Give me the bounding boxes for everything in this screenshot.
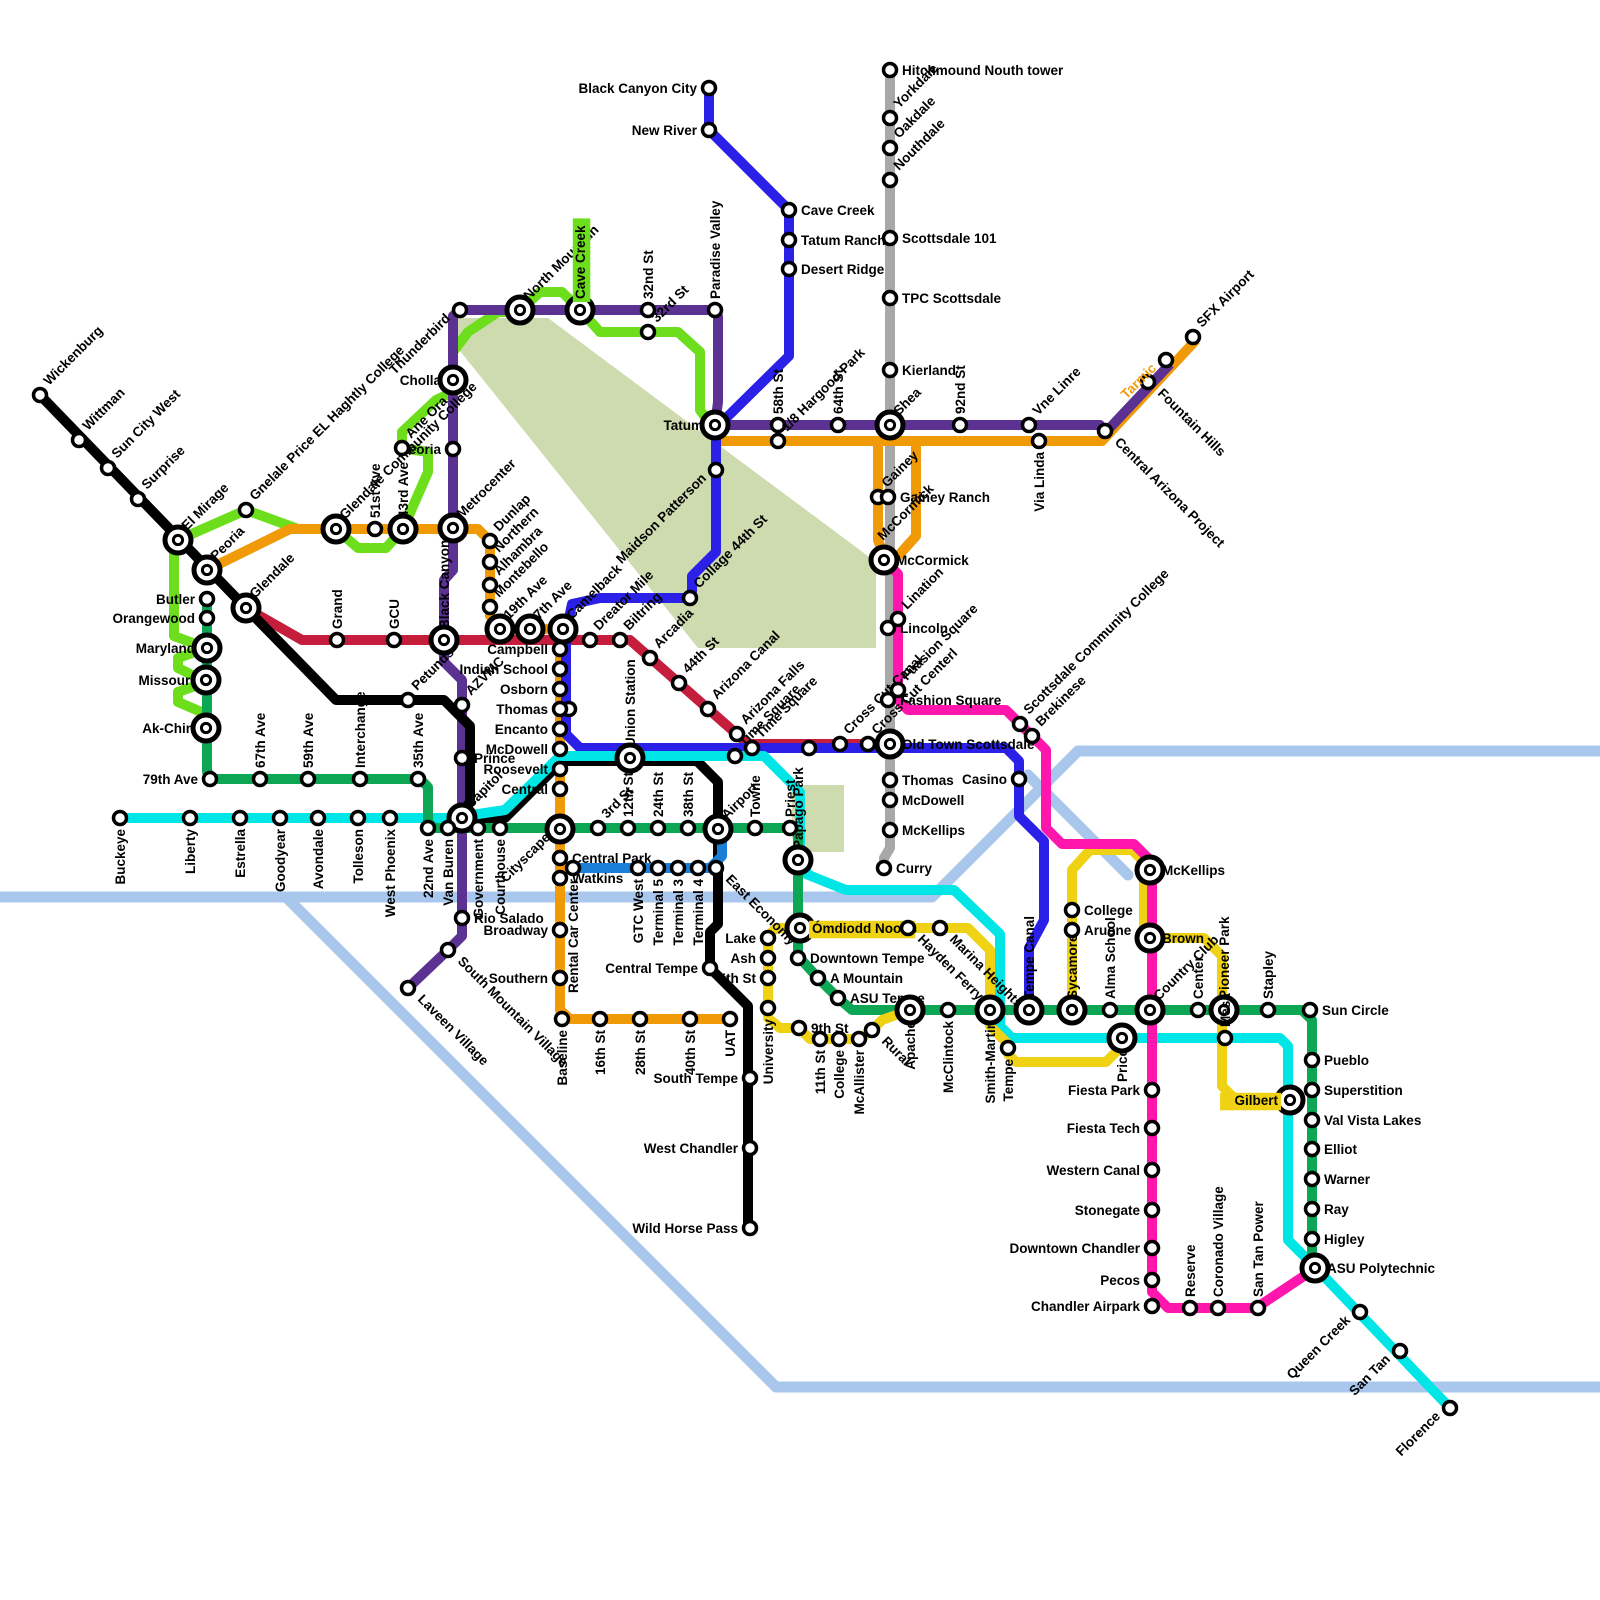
station-label: Curry (896, 861, 933, 876)
station-marker-icon[interactable] (1212, 1302, 1225, 1315)
station-stonegate[interactable]: Stonegate (1075, 1203, 1159, 1218)
station-marker-icon[interactable] (456, 699, 469, 712)
station-marker-icon[interactable] (1066, 924, 1079, 937)
station-center[interactable]: Center (1191, 955, 1206, 1016)
station-terminal-3[interactable]: Terminal 3 (671, 862, 686, 946)
station-marker-icon[interactable] (1146, 1300, 1159, 1313)
station-marker-icon[interactable] (652, 822, 665, 835)
station-new-river[interactable]: New River (632, 123, 716, 138)
station-marker-icon[interactable] (746, 742, 759, 755)
station-encanto[interactable]: Encanto (495, 722, 567, 737)
station-campbell[interactable]: Campbell (487, 642, 566, 657)
station-marker-icon[interactable] (702, 703, 715, 716)
station-label: Black Canyon (437, 540, 452, 629)
station-lake[interactable]: Lake (725, 931, 774, 946)
station-surprise[interactable]: Surprise (132, 442, 189, 505)
station-marker-icon[interactable] (352, 812, 365, 825)
station-stapley[interactable]: Stapley (1261, 950, 1276, 1016)
station-marker-icon[interactable] (1219, 1032, 1232, 1045)
station-desert-ridge[interactable]: Desert Ridge (783, 262, 885, 277)
station-marker-icon[interactable] (442, 822, 455, 835)
station-fashion-square[interactable]: Fashion Square (882, 693, 1002, 708)
station-marker-icon[interactable] (447, 443, 460, 456)
station-marker-icon[interactable] (853, 1033, 866, 1046)
station-sycamore[interactable]: Sycamore (1059, 934, 1085, 1023)
station-broadway[interactable]: Broadway (483, 923, 566, 938)
station-marker-icon[interactable] (384, 812, 397, 825)
station-28th-st[interactable]: 28th St (633, 1013, 648, 1076)
station-marker-icon[interactable] (234, 812, 247, 825)
station-marker-icon[interactable] (710, 862, 723, 875)
station-marker-icon[interactable] (884, 112, 897, 125)
station-label: Shea (891, 384, 925, 418)
station-marker-icon[interactable] (1306, 1054, 1319, 1067)
station-label: 67th Ave (253, 712, 268, 768)
station-thomas[interactable]: Thomas (884, 773, 954, 788)
station-marker-icon[interactable] (709, 304, 722, 317)
interchange-inner-ring-icon (201, 723, 210, 732)
station-marker-icon[interactable] (1002, 1042, 1015, 1055)
station-mdiodd-noobs[interactable]: Ómdiodd Noobs (787, 915, 917, 941)
station-label: Wild Horse Pass (632, 1221, 738, 1236)
station-marker-icon[interactable] (731, 728, 744, 741)
station-mckellips[interactable]: McKellips (884, 823, 966, 838)
station-marker-icon[interactable] (884, 824, 897, 837)
station-marker-icon[interactable] (832, 992, 845, 1005)
station-fiesta-tech[interactable]: Fiesta Tech (1067, 1121, 1159, 1136)
station-label: Government (471, 839, 486, 919)
station-college[interactable]: College (1066, 903, 1134, 918)
interchange-inner-ring-icon (1310, 1263, 1319, 1272)
station-label: Kierland (902, 363, 956, 378)
station-marker-icon[interactable] (1306, 1084, 1319, 1097)
station-station[interactable] (803, 742, 816, 755)
station-thomas[interactable]: Thomas (496, 702, 566, 717)
station-downtown-chandler[interactable]: Downtown Chandler (1010, 1241, 1159, 1256)
station-marker-icon[interactable] (684, 1013, 697, 1026)
station-marker-icon[interactable] (554, 703, 567, 716)
station-marker-icon[interactable] (1262, 1004, 1275, 1017)
station-marker-icon[interactable] (1104, 1004, 1117, 1017)
station-marker-icon[interactable] (1306, 1114, 1319, 1127)
station-marker-icon[interactable] (554, 783, 567, 796)
station-marker-icon[interactable] (762, 952, 775, 965)
station-butler[interactable]: Butler (156, 592, 214, 607)
station-tempe[interactable]: Tempe (1001, 1042, 1016, 1102)
station-ray[interactable]: Ray (1306, 1202, 1350, 1217)
station-scottsdale-101[interactable]: Scottsdale 101 (884, 231, 998, 246)
station-24th-st[interactable]: 24th St (651, 771, 666, 834)
station-marker-icon[interactable] (692, 862, 705, 875)
station-marker-icon[interactable] (456, 752, 469, 765)
station-marker-icon[interactable] (832, 419, 845, 432)
station-marker-icon[interactable] (682, 822, 695, 835)
station-marker-icon[interactable] (1146, 1084, 1159, 1097)
station-marker-icon[interactable] (454, 304, 467, 317)
station-western-canal[interactable]: Western Canal (1046, 1163, 1158, 1178)
station-mcallister[interactable]: McAllister (852, 1033, 867, 1115)
station-marker-icon[interactable] (554, 663, 567, 676)
station-marker-icon[interactable] (302, 773, 315, 786)
station-marker-icon[interactable] (749, 822, 762, 835)
station-marker-icon[interactable] (73, 434, 86, 447)
station-mcdowell[interactable]: McDowell (486, 742, 567, 757)
station-marker-icon[interactable] (1023, 419, 1036, 432)
station-goodyear[interactable]: Goodyear (273, 812, 288, 893)
station-label: Central Tempe (605, 961, 698, 976)
station-sun-circle[interactable]: Sun Circle (1304, 1003, 1390, 1018)
station-via-linda[interactable]: Via Linda (1032, 435, 1047, 512)
station-tpc-scottsdale[interactable]: TPC Scottsdale (884, 291, 1002, 306)
station-reserve[interactable]: Reserve (1183, 1244, 1198, 1315)
station-51st-ave[interactable]: 51st Ave (368, 463, 383, 536)
station-florence[interactable]: Florence (1393, 1402, 1457, 1459)
station-16th-st[interactable]: 16th St (593, 1013, 608, 1076)
station-mccormick[interactable]: McCormick (871, 547, 969, 573)
station-brown[interactable]: Brown (1137, 925, 1204, 951)
station-south-mountain-village[interactable]: South Mountain Village (442, 944, 572, 1070)
station-marker-icon[interactable] (792, 952, 805, 965)
interchange-inner-ring-icon (555, 824, 564, 833)
station-marker-icon[interactable] (554, 872, 567, 885)
station-marker-icon[interactable] (622, 822, 635, 835)
station-scottsdale-community-college[interactable]: Scottsdale Community College (1014, 566, 1173, 731)
station-marker-icon[interactable] (884, 232, 897, 245)
station-32nd-st[interactable]: 32nd St (641, 250, 656, 317)
station-ak-chin[interactable]: Ak-Chin (142, 715, 219, 741)
station-southern[interactable]: Southern (489, 971, 567, 986)
station-marker-icon[interactable] (201, 612, 214, 625)
station-marker-icon[interactable] (240, 504, 253, 517)
station-marker-icon[interactable] (1033, 435, 1046, 448)
station-marker-icon[interactable] (762, 972, 775, 985)
station-11th-st[interactable]: 11th St (813, 1033, 828, 1095)
station-marker-icon[interactable] (1026, 730, 1039, 743)
station-marker-icon[interactable] (204, 773, 217, 786)
station-79th-ave[interactable]: 79th Ave (143, 772, 217, 787)
station-label: College (832, 1050, 847, 1099)
station-coronado-village[interactable]: Coronado Village (1211, 1186, 1226, 1315)
station-marker-icon[interactable] (402, 694, 415, 707)
station-marker-icon[interactable] (1444, 1402, 1457, 1415)
station-12th-st[interactable]: 12th St (621, 771, 636, 834)
station-marker-icon[interactable] (554, 683, 567, 696)
station-marker-icon[interactable] (1394, 1345, 1407, 1358)
station-marker-icon[interactable] (592, 822, 605, 835)
station-union-station[interactable]: Union Station (617, 659, 643, 771)
station-asu-polytechnic[interactable]: ASU Polytechnic (1302, 1255, 1436, 1281)
station-67th-ave[interactable]: 67th Ave (253, 712, 268, 785)
station-marker-icon[interactable] (1184, 1302, 1197, 1315)
station-marker-icon[interactable] (882, 622, 895, 635)
station-label-group: SFX Airport (1194, 266, 1258, 330)
station-marker-icon[interactable] (1306, 1233, 1319, 1246)
station-marker-icon[interactable] (834, 738, 847, 751)
station-college[interactable]: College (832, 1033, 847, 1099)
station-marker-icon[interactable] (744, 1142, 757, 1155)
station-marker-icon[interactable] (703, 82, 716, 95)
station-marker-icon[interactable] (412, 773, 425, 786)
station-terminal-4[interactable]: Terminal 4 (691, 862, 706, 946)
station-marker-icon[interactable] (584, 634, 597, 647)
station-baseline[interactable]: Baseline (555, 1013, 570, 1086)
station-casino[interactable]: Casino (962, 772, 1026, 787)
station-marker-icon[interactable] (554, 743, 567, 756)
station-curry[interactable]: Curry (878, 861, 933, 876)
station-towne[interactable]: Towne (748, 775, 763, 835)
interchange-inner-ring-icon (448, 523, 457, 532)
station-marker-icon[interactable] (884, 774, 897, 787)
station-marker-icon[interactable] (772, 435, 785, 448)
station-marker-icon[interactable] (783, 234, 796, 247)
station-cholla[interactable]: Cholla (400, 367, 466, 393)
station-marker-icon[interactable] (744, 1072, 757, 1085)
station-marker-icon[interactable] (396, 442, 409, 455)
station-label: Thomas (496, 702, 548, 717)
station-marker-icon[interactable] (783, 263, 796, 276)
station-38th-st[interactable]: 38th St (681, 771, 696, 834)
station-cave-creek[interactable]: Cave Creek (783, 203, 876, 218)
station-marker-icon[interactable] (814, 1033, 827, 1046)
station-aruone[interactable]: Aruone (1066, 923, 1132, 938)
station-marker-icon[interactable] (184, 812, 197, 825)
station-south-tempe[interactable]: South Tempe (653, 1071, 756, 1086)
station-black-canyon-city[interactable]: Black Canyon City (578, 81, 715, 96)
station-marker-icon[interactable] (556, 1013, 569, 1026)
station-marker-icon[interactable] (704, 962, 717, 975)
station-marker-icon[interactable] (554, 924, 567, 937)
station-marker-icon[interactable] (884, 174, 897, 187)
station-mcclintock[interactable]: McClintock (941, 1004, 956, 1094)
station-marker-icon[interactable] (201, 593, 214, 606)
station-tolleson[interactable]: Tolleson (351, 812, 366, 884)
station-label-group: UAT (723, 1029, 738, 1056)
station-marker-icon[interactable] (554, 723, 567, 736)
station-marker-icon[interactable] (1066, 904, 1079, 917)
station-marker-icon[interactable] (884, 364, 897, 377)
station-west-phoenix[interactable]: West Phoenix (383, 812, 398, 918)
station-marker-icon[interactable] (114, 812, 127, 825)
station-marker-icon[interactable] (1146, 1164, 1159, 1177)
station-label-group: Fiesta Park (1068, 1083, 1141, 1098)
station-van-buren[interactable]: Van Buren (441, 822, 456, 906)
station-marker-icon[interactable] (34, 389, 47, 402)
station-hitchmound-nouth-tower[interactable]: Hitchmound Nouth tower (884, 63, 1064, 78)
station-59th-ave[interactable]: 59th Ave (301, 712, 316, 785)
station-marker-icon[interactable] (554, 763, 567, 776)
station-label-group: 35th Ave (411, 712, 426, 768)
station-marker-icon[interactable] (594, 1013, 607, 1026)
station-chandler-airpark[interactable]: Chandler Airpark (1031, 1299, 1159, 1314)
station-22nd-ave[interactable]: 22nd Ave (421, 822, 436, 899)
station-marker-icon[interactable] (254, 773, 267, 786)
station-marker-icon[interactable] (634, 1013, 647, 1026)
station-roosevelt[interactable]: Roosevelt (483, 762, 566, 777)
station-osborn[interactable]: Osborn (500, 682, 567, 697)
station-marker-icon[interactable] (422, 822, 435, 835)
station-marker-icon[interactable] (354, 773, 367, 786)
station-marker-icon[interactable] (1013, 773, 1026, 786)
station-marker-icon[interactable] (644, 652, 657, 665)
station-wild-horse-pass[interactable]: Wild Horse Pass (632, 1221, 756, 1236)
station-government[interactable]: Government (471, 822, 486, 919)
station-marker-icon[interactable] (884, 292, 897, 305)
station-label: McDowell (486, 742, 548, 757)
station-fiesta-park[interactable]: Fiesta Park (1068, 1083, 1159, 1098)
station-marker-icon[interactable] (1306, 1143, 1319, 1156)
station-40th-st[interactable]: 40th St (683, 1013, 698, 1076)
station-label: 28th St (633, 1030, 648, 1076)
station-interchange[interactable]: Interchange (353, 691, 368, 786)
station-lincoln[interactable]: Lincoln (882, 621, 949, 636)
station-uat[interactable]: UAT (723, 1013, 738, 1057)
station-marker-icon[interactable] (710, 464, 723, 477)
station-label: Lincoln (900, 621, 948, 636)
station-marker-icon[interactable] (388, 634, 401, 647)
station-orangewood[interactable]: Orangewood (112, 611, 213, 626)
station-marker-icon[interactable] (369, 523, 382, 536)
station-marker-icon[interactable] (672, 862, 685, 875)
station-label: Lake (725, 931, 756, 946)
station-label-group: Goodyear (273, 828, 288, 892)
station-marker-icon[interactable] (652, 862, 665, 875)
station-marker-icon[interactable] (724, 1013, 737, 1026)
station-marker-icon[interactable] (494, 822, 507, 835)
station-central-tempe[interactable]: Central Tempe (605, 961, 716, 976)
station-elliot[interactable]: Elliot (1306, 1142, 1358, 1157)
station-buckeye[interactable]: Buckeye (113, 812, 128, 885)
station-mesa[interactable]: Mesa (1218, 993, 1233, 1045)
station-west-chandler[interactable]: West Chandler (644, 1141, 757, 1156)
station-marker-icon[interactable] (866, 1024, 879, 1037)
station-warner[interactable]: Warner (1306, 1172, 1371, 1187)
station-marker-icon[interactable] (1304, 1004, 1317, 1017)
station-mcdowell[interactable]: McDowell (884, 793, 965, 808)
station-marker-icon[interactable] (642, 326, 655, 339)
station-tatum-ranch[interactable]: Tatum Ranch (783, 233, 886, 248)
station-gcu[interactable]: GCU (387, 599, 402, 647)
station-marker-icon[interactable] (1192, 1004, 1205, 1017)
station-marker-icon[interactable] (442, 944, 455, 957)
station-grand[interactable]: Grand (330, 589, 345, 646)
station-marker-icon[interactable] (729, 750, 742, 763)
station-marker-icon[interactable] (762, 932, 775, 945)
station-marker-icon[interactable] (312, 812, 325, 825)
station-marker-icon[interactable] (812, 972, 825, 985)
station-marker-icon[interactable] (1146, 1274, 1159, 1287)
station-central[interactable]: Central (501, 782, 566, 797)
station-marker-icon[interactable] (934, 922, 947, 935)
station-terminal-5[interactable]: Terminal 5 (651, 862, 666, 946)
station-marker-icon[interactable] (744, 1222, 757, 1235)
station-avondale[interactable]: Avondale (311, 812, 326, 890)
station-marker-icon[interactable] (882, 491, 895, 504)
station-marker-icon[interactable] (1306, 1203, 1319, 1216)
station-watkins[interactable]: Watkins (554, 871, 624, 886)
station-cave-creek[interactable]: Cave Creek (567, 218, 593, 323)
station-marker-icon[interactable] (274, 812, 287, 825)
station-marker-icon[interactable] (1146, 1122, 1159, 1135)
station-indian-school[interactable]: Indian School (459, 662, 566, 677)
station-marker-icon[interactable] (554, 852, 567, 865)
station-marker-icon[interactable] (673, 677, 686, 690)
station-san-tan-power[interactable]: San Tan Power (1251, 1200, 1266, 1314)
station-marker-icon[interactable] (882, 694, 895, 707)
station-marker-icon[interactable] (783, 204, 796, 217)
station-marker-icon[interactable] (1160, 354, 1173, 367)
station-marker-icon[interactable] (1187, 331, 1200, 344)
station-marker-icon[interactable] (803, 742, 816, 755)
station-marker-icon[interactable] (1146, 1242, 1159, 1255)
station-label: Southern (489, 971, 548, 986)
station-marker-icon[interactable] (884, 142, 897, 155)
station-label-group: Tatum Ranch (801, 233, 886, 248)
station-wittman[interactable]: Wittman (73, 385, 128, 447)
station-mckellips[interactable]: McKellips (1137, 857, 1225, 883)
station-marker-icon[interactable] (862, 738, 875, 751)
station-marker-icon[interactable] (1354, 1306, 1367, 1319)
station-marker-icon[interactable] (456, 912, 469, 925)
station-university[interactable]: University (761, 1002, 776, 1085)
station-glendale[interactable]: Glendale (233, 550, 298, 621)
station-marker-icon[interactable] (954, 419, 967, 432)
station-marker-icon[interactable] (1306, 1173, 1319, 1186)
station-kierland[interactable]: Kierland (884, 363, 957, 378)
station-ash[interactable]: Ash (730, 951, 774, 966)
station-estrella[interactable]: Estrella (233, 812, 248, 878)
station-marker-icon[interactable] (331, 634, 344, 647)
station-marker-icon[interactable] (884, 64, 897, 77)
station-paradise-valley[interactable]: Paradise Valley (708, 200, 723, 316)
station-val-vista-lakes[interactable]: Val Vista Lakes (1306, 1113, 1422, 1128)
station-marker-icon[interactable] (132, 493, 145, 506)
station-marker-icon[interactable] (614, 634, 627, 647)
station-marker-icon[interactable] (1014, 718, 1027, 731)
station-pecos[interactable]: Pecos (1100, 1273, 1158, 1288)
station-liberty[interactable]: Liberty (183, 812, 198, 875)
station-queen-creek[interactable]: Queen Creek (1284, 1306, 1367, 1383)
station-marker-icon[interactable] (833, 1033, 846, 1046)
station-smith-martin[interactable]: Smith-Martin (977, 997, 1003, 1104)
station-gtc-west[interactable]: GTC West (631, 862, 646, 944)
station-5th-st[interactable]: 5th St (718, 971, 774, 986)
station-marker-icon[interactable] (102, 462, 115, 475)
station-marker-icon[interactable] (402, 982, 415, 995)
station-superstition[interactable]: Superstition (1306, 1083, 1403, 1098)
station-marker-icon[interactable] (793, 1022, 806, 1035)
station-35th-ave[interactable]: 35th Ave (411, 712, 426, 785)
station-marker-icon[interactable] (884, 794, 897, 807)
station-marker-icon[interactable] (554, 972, 567, 985)
station-marker-icon[interactable] (762, 1002, 775, 1015)
station-marker-icon[interactable] (684, 592, 697, 605)
station-marker-icon[interactable] (942, 1004, 955, 1017)
station-marker-icon[interactable] (472, 822, 485, 835)
station-sfx-airport[interactable]: SFX Airport (1187, 266, 1258, 343)
station-marker-icon[interactable] (554, 643, 567, 656)
station-higley[interactable]: Higley (1306, 1232, 1366, 1247)
station-marker-icon[interactable] (1146, 1204, 1159, 1217)
station-wickenburg[interactable]: Wickenburg (34, 323, 106, 402)
station-marker-icon[interactable] (902, 922, 915, 935)
station-marker-icon[interactable] (484, 601, 497, 614)
station-pueblo[interactable]: Pueblo (1306, 1053, 1370, 1068)
station-marker-icon[interactable] (878, 862, 891, 875)
station-downtown-tempe[interactable]: Downtown Tempe (792, 951, 925, 966)
station-marker-icon[interactable] (703, 124, 716, 137)
station-marker-icon[interactable] (1099, 425, 1112, 438)
station-marker-icon[interactable] (1252, 1302, 1265, 1315)
